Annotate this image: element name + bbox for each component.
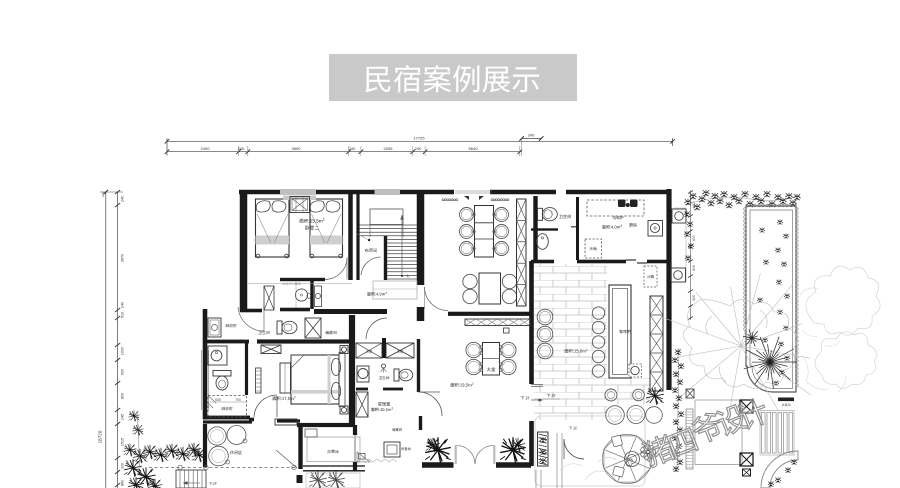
svg-text:245: 245 <box>121 414 125 420</box>
svg-text:1000: 1000 <box>121 347 125 355</box>
svg-text:610: 610 <box>121 312 125 318</box>
svg-text:2400: 2400 <box>201 146 211 151</box>
svg-text:805: 805 <box>692 265 696 271</box>
svg-text:240: 240 <box>121 302 125 308</box>
svg-text:18720: 18720 <box>98 430 103 443</box>
svg-text:320: 320 <box>121 463 125 469</box>
svg-text:700: 700 <box>235 398 241 402</box>
svg-text:3670: 3670 <box>121 254 125 262</box>
svg-text:240: 240 <box>349 146 356 151</box>
svg-text:630: 630 <box>215 398 221 402</box>
svg-text:325: 325 <box>692 295 696 301</box>
svg-text:240: 240 <box>238 146 245 151</box>
svg-text:600: 600 <box>121 369 125 375</box>
svg-text:2095: 2095 <box>384 146 394 151</box>
svg-text:600: 600 <box>692 235 696 241</box>
svg-text:240: 240 <box>528 133 535 138</box>
svg-text:3690: 3690 <box>292 146 302 151</box>
svg-text:800: 800 <box>121 393 125 399</box>
svg-text:17725: 17725 <box>413 136 425 141</box>
svg-text:1515: 1515 <box>121 438 125 446</box>
svg-text:5640: 5640 <box>469 146 479 151</box>
svg-text:240: 240 <box>415 146 422 151</box>
svg-text:860: 860 <box>121 480 125 486</box>
svg-text:240: 240 <box>121 196 125 202</box>
svg-text:4x1117=4468: 4x1117=4468 <box>282 282 301 286</box>
